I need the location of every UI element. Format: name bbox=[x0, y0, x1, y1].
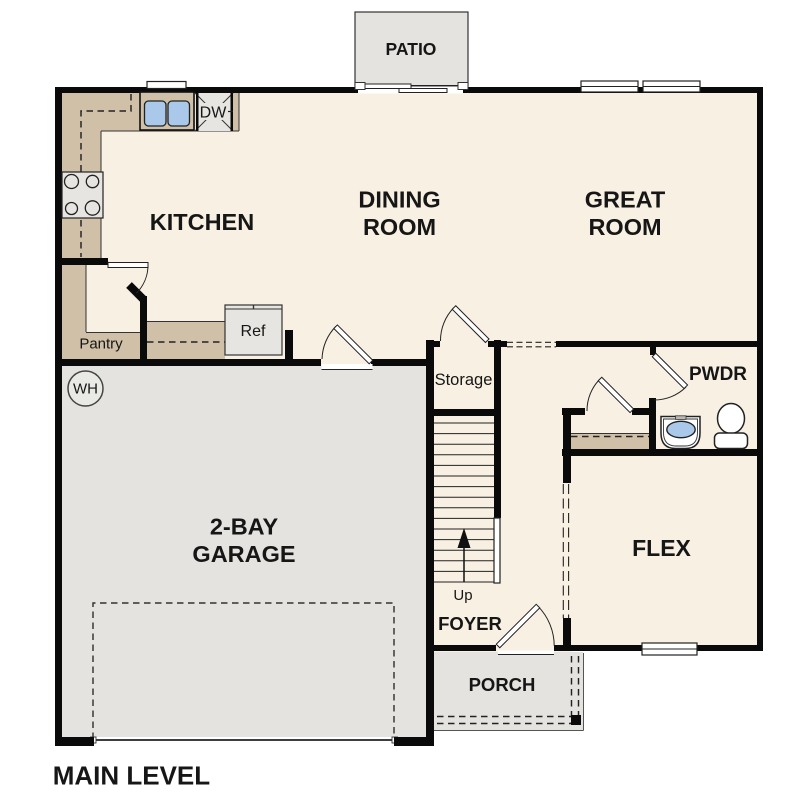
svg-text:FLEX: FLEX bbox=[632, 535, 691, 561]
svg-text:ROOM: ROOM bbox=[588, 214, 661, 240]
svg-text:PORCH: PORCH bbox=[469, 674, 536, 695]
svg-text:WH: WH bbox=[73, 381, 98, 398]
svg-text:ROOM: ROOM bbox=[363, 214, 436, 240]
svg-text:Storage: Storage bbox=[435, 371, 493, 389]
svg-text:MAIN LEVEL: MAIN LEVEL bbox=[53, 761, 211, 791]
svg-text:Pantry: Pantry bbox=[79, 336, 123, 353]
svg-text:Ref: Ref bbox=[241, 323, 266, 340]
svg-text:GARAGE: GARAGE bbox=[192, 541, 295, 567]
svg-text:DINING: DINING bbox=[358, 187, 440, 213]
svg-text:PWDR: PWDR bbox=[689, 364, 747, 385]
svg-text:GREAT: GREAT bbox=[585, 187, 666, 213]
svg-text:KITCHEN: KITCHEN bbox=[150, 209, 254, 235]
svg-text:DW: DW bbox=[200, 105, 228, 122]
svg-text:FOYER: FOYER bbox=[438, 613, 502, 634]
svg-text:Up: Up bbox=[453, 587, 472, 604]
svg-text:2-BAY: 2-BAY bbox=[210, 514, 279, 540]
svg-text:PATIO: PATIO bbox=[386, 39, 437, 59]
